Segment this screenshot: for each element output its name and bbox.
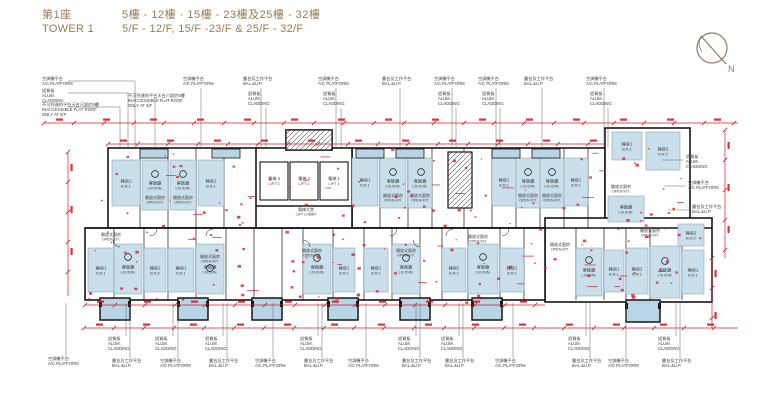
dimension-number-mark xyxy=(191,301,198,303)
annotation-mark xyxy=(410,195,412,197)
annotation-mark xyxy=(582,244,583,245)
annotation-mark xyxy=(162,225,165,227)
annotation-mark xyxy=(648,148,650,149)
annotation-mark xyxy=(477,295,480,298)
annotation-mark xyxy=(299,296,302,298)
callout-label: CLADDING xyxy=(323,101,345,106)
annotation-mark xyxy=(618,228,620,230)
dimension-number-mark xyxy=(97,301,104,303)
room-label: LIV./DIN. xyxy=(398,271,413,275)
room-label: LIV./DIN. xyxy=(657,274,672,278)
callout-label: A/C PLATFORM xyxy=(586,81,617,86)
room-label: 睡房2 xyxy=(449,265,460,272)
room-label: 睡房2 xyxy=(686,230,697,237)
dimension-number-mark xyxy=(150,119,157,121)
annotation-mark xyxy=(455,239,456,240)
annotation-mark xyxy=(407,190,410,192)
room-label: 睡房1 xyxy=(360,177,371,184)
lift-label: LIFT 1 xyxy=(329,182,340,186)
dimension-number-mark xyxy=(261,140,268,142)
room-label: 開放式廚房 xyxy=(611,183,631,189)
annotation-mark xyxy=(342,239,344,240)
dimension-number-mark xyxy=(526,119,533,121)
annotation-mark xyxy=(120,287,123,289)
callout-label: BAL.&U.P. xyxy=(382,81,401,86)
room-label: 睡房1 xyxy=(571,177,582,184)
annotation-mark xyxy=(289,187,291,189)
annotation-mark xyxy=(664,228,665,229)
room-label: 睡房1 xyxy=(206,178,217,185)
annotation-mark xyxy=(580,158,582,160)
annotation-mark xyxy=(176,176,179,178)
room-label: 睡房1 xyxy=(622,141,633,148)
room-label: 開放式廚房 xyxy=(468,233,488,239)
annotation-mark xyxy=(298,161,300,163)
room-label: 客飯廳 xyxy=(546,178,559,185)
annotation-mark xyxy=(671,282,673,283)
room-label: LIV./DIN. xyxy=(120,271,135,275)
lift-shaft xyxy=(320,162,348,200)
room-label: 睡房1 xyxy=(339,265,350,272)
room-label: OPEN KIT. xyxy=(551,248,569,252)
lift-label: 電梯 3 xyxy=(268,175,281,182)
balcony-strip xyxy=(532,149,560,158)
annotation-mark xyxy=(479,283,481,285)
dimension-number-mark xyxy=(285,301,292,303)
annotation-mark xyxy=(134,288,137,290)
dimension-number-mark xyxy=(120,140,127,142)
lift-label: LIFT 2 xyxy=(299,182,310,186)
dimension-number-mark xyxy=(425,324,432,326)
room-label: 客飯廳 xyxy=(311,264,324,271)
balcony-strip xyxy=(140,149,168,158)
balcony-column xyxy=(327,301,330,307)
dimension-number-mark xyxy=(566,324,573,326)
dimension-number-mark xyxy=(473,301,480,303)
annotation-mark xyxy=(404,207,406,209)
annotation-mark xyxy=(233,166,236,168)
annotation-mark xyxy=(88,298,90,300)
annotation-mark xyxy=(577,204,580,206)
balcony-strip xyxy=(356,149,384,158)
room-label: 睡房1 xyxy=(507,265,518,272)
dimension-number-mark xyxy=(613,324,620,326)
room-label: 睡房1 xyxy=(499,177,510,184)
callout-label: BAL.&U.P. xyxy=(524,81,543,86)
dimension-number-mark xyxy=(449,140,456,142)
dimension-number-mark xyxy=(520,301,527,303)
annotation-mark xyxy=(107,231,109,232)
room-label: OPEN KIT. xyxy=(102,238,120,242)
balcony-column xyxy=(280,301,283,307)
annotation-mark xyxy=(357,267,360,270)
dimension-number-mark xyxy=(332,301,339,303)
callout-label: CLADDING xyxy=(568,346,590,351)
room-label: B.R.1 xyxy=(622,148,632,152)
annotation-mark xyxy=(124,252,127,254)
annotation-mark xyxy=(89,292,92,295)
annotation-mark xyxy=(241,284,244,287)
dimension-number-mark xyxy=(197,119,204,121)
annotation-mark xyxy=(509,223,510,224)
balcony-strip xyxy=(396,149,424,158)
callout-label: BAL.&U.P. xyxy=(572,363,591,368)
callout-label: CLADDING xyxy=(438,101,460,106)
callout-label: A/C PLATFORM xyxy=(48,361,79,366)
annotation-mark xyxy=(534,262,536,263)
callout-label: BAL.&U.P. xyxy=(662,363,681,368)
annotation-mark xyxy=(342,215,345,217)
annotation-mark xyxy=(193,238,195,240)
annotation-mark xyxy=(650,213,653,215)
annotation-mark xyxy=(317,256,320,259)
callout-label: CLADDING xyxy=(108,346,130,351)
annotation-mark xyxy=(318,296,320,297)
room-label: 客飯廳 xyxy=(477,264,490,271)
annotation-mark xyxy=(332,262,333,263)
annotation-mark xyxy=(293,270,296,272)
annotation-mark xyxy=(306,257,308,258)
lift-shaft xyxy=(260,162,288,200)
annotation-mark xyxy=(678,234,681,236)
annotation-mark xyxy=(640,212,642,214)
annotation-mark xyxy=(242,222,244,223)
annotation-mark xyxy=(146,232,148,233)
callout-label: BAL.&U.P. xyxy=(692,209,711,214)
annotation-mark xyxy=(287,148,288,149)
room-label: 睡房2 xyxy=(632,266,643,273)
dimension-number-mark xyxy=(284,324,291,326)
annotation-mark xyxy=(470,210,472,212)
dimension-number-mark xyxy=(378,324,385,326)
annotation-mark xyxy=(398,217,400,219)
callout-label: A/C PLATFORM xyxy=(478,81,509,86)
room-label: 睡房1 xyxy=(121,178,132,185)
room-label: 開放式廚房 xyxy=(640,227,660,233)
callout-label: BAL.&U.P. xyxy=(304,363,323,368)
annotation-mark xyxy=(532,202,534,204)
room-label: 開放式廚房 xyxy=(383,192,403,198)
room-label: LIV./DIN. xyxy=(309,271,324,275)
dimension-number-mark xyxy=(308,140,315,142)
annotation-mark xyxy=(94,250,95,251)
annotation-mark xyxy=(590,249,592,251)
callout-label: BAL.&U.P. xyxy=(243,81,262,86)
room-label: 客飯廳 xyxy=(620,204,633,211)
dimension-number-mark xyxy=(728,184,730,191)
callout-label: A/C PLATFORM xyxy=(42,81,73,86)
annotation-mark xyxy=(241,294,244,296)
annotation-mark xyxy=(666,261,669,263)
annotation-mark xyxy=(619,278,622,280)
room-label: OPEN KIT. xyxy=(146,201,164,205)
annotation-mark xyxy=(358,181,360,182)
annotation-mark xyxy=(436,281,438,283)
annotation-mark xyxy=(672,208,675,210)
annotation-mark xyxy=(622,157,625,159)
room-label: LIV./DIN. xyxy=(412,185,427,189)
room-label: LIV./DIN. xyxy=(618,211,633,215)
room-label: B.R.2 xyxy=(658,153,668,157)
annotation-mark xyxy=(450,249,453,252)
room-label: 開放式廚房 xyxy=(101,231,121,237)
annotation-mark xyxy=(394,272,397,274)
balcony-column xyxy=(128,301,131,307)
callout-label: CLADDING xyxy=(300,346,322,351)
annotation-mark xyxy=(269,179,271,181)
room-label: B.R.1 xyxy=(96,272,106,276)
annotation-mark xyxy=(126,213,128,215)
dimension-number-mark xyxy=(355,140,362,142)
annotation-mark xyxy=(335,297,338,299)
balcony xyxy=(400,298,430,320)
annotation-mark xyxy=(589,176,592,178)
balcony xyxy=(626,300,660,322)
room-label: LIV./DIN. xyxy=(385,185,400,189)
room-label: 客飯廳 xyxy=(387,178,400,185)
callout-label: A/C PLATFORM xyxy=(183,81,214,86)
annotation-mark xyxy=(626,219,629,222)
room-label: 開放式廚房 xyxy=(173,194,193,200)
room-label: 電梯大堂 xyxy=(298,206,314,212)
annotation-mark xyxy=(465,167,468,169)
room-label: LIV./DIN. xyxy=(520,185,535,189)
annotation-mark xyxy=(460,300,462,301)
room-label: 客飯廳 xyxy=(400,264,413,271)
room-label: 開放式廚房 xyxy=(542,192,562,198)
callout-label: ONLY AT 5/F xyxy=(128,103,153,108)
room-label: OPEN KIT. xyxy=(411,199,429,203)
callout-label: A/C PLATFORM xyxy=(348,363,379,368)
annotation-mark xyxy=(423,260,425,262)
callout-label: CLADDING xyxy=(441,346,463,351)
room-label: 開放式廚房 xyxy=(410,192,430,198)
dimension-number-mark xyxy=(385,119,392,121)
dimension-number-mark xyxy=(143,324,150,326)
annotation-mark xyxy=(173,166,176,168)
room-label: 客飯廳 xyxy=(122,264,135,271)
dimension-number-mark xyxy=(144,301,151,303)
annotation-mark xyxy=(544,267,547,269)
balcony-column xyxy=(658,303,661,309)
dimension-number-mark xyxy=(728,142,730,149)
annotation-mark xyxy=(291,286,294,288)
annotation-mark xyxy=(497,278,500,280)
room-label: 客飯廳 xyxy=(177,180,190,187)
room-label: 睡房1 xyxy=(176,265,187,272)
room-label: 睡房1 xyxy=(609,266,620,273)
room-label: B.R.1 xyxy=(609,273,619,277)
annotation-mark xyxy=(634,163,636,164)
annotation-mark xyxy=(239,224,241,226)
annotation-mark xyxy=(423,205,426,207)
callout-label: A/C PLATFORM xyxy=(434,81,465,86)
dimension-number-mark xyxy=(244,119,251,121)
lift-shaft xyxy=(290,162,318,200)
balcony xyxy=(252,298,282,320)
room-label: 開放式廚房 xyxy=(550,241,570,247)
annotation-mark xyxy=(405,244,407,246)
callout-label: A/C PLATFORM xyxy=(495,363,526,368)
annotation-mark xyxy=(675,271,678,273)
room-label: B.R.2 xyxy=(449,272,459,276)
dimension-number-mark xyxy=(432,119,439,121)
dimension-number-mark xyxy=(56,119,63,121)
annotation-mark xyxy=(481,159,482,160)
annotation-mark xyxy=(136,261,138,262)
annotation-mark xyxy=(115,173,117,175)
annotation-mark xyxy=(645,224,648,226)
annotation-mark xyxy=(432,209,435,212)
room-label: 開放式廚房 xyxy=(302,247,322,253)
annotation-mark xyxy=(101,200,103,201)
balcony-column xyxy=(500,301,503,307)
annotation-mark xyxy=(384,248,385,249)
room-label: 開放式廚房 xyxy=(200,253,220,259)
room-label: OPEN KIT. xyxy=(174,201,192,205)
dimension-number-mark xyxy=(331,324,338,326)
dimension-number-mark xyxy=(426,301,433,303)
balcony-column xyxy=(177,301,180,307)
annotation-mark xyxy=(509,266,512,269)
annotation-mark xyxy=(225,209,227,211)
room-label: B.R.2 xyxy=(686,237,696,241)
dimension-number-mark xyxy=(707,324,714,326)
lift-label: 電梯 1 xyxy=(328,175,341,182)
callout-label: CLADDING xyxy=(155,346,177,351)
balcony-column xyxy=(625,303,628,309)
dimension-number-mark xyxy=(667,119,674,121)
callout-label: BAL.&U.P. xyxy=(402,363,421,368)
room-label: 客飯廳 xyxy=(414,178,427,185)
callout-label: BAL.&U.P. xyxy=(445,363,464,368)
annotation-mark xyxy=(668,212,670,214)
annotation-mark xyxy=(203,211,206,213)
annotation-mark xyxy=(238,265,241,268)
dimension-number-mark xyxy=(71,164,73,171)
annotation-mark xyxy=(403,183,405,184)
dimension-number-mark xyxy=(71,206,73,213)
annotation-mark xyxy=(156,298,158,299)
annotation-mark xyxy=(587,275,590,277)
room-label: B.R.2 xyxy=(150,272,160,276)
annotation-mark xyxy=(433,160,435,162)
room-label: LIV./DIN. xyxy=(175,187,190,191)
dimension-number-mark xyxy=(238,301,245,303)
callout-label: CLADDING xyxy=(398,346,420,351)
annotation-mark xyxy=(485,195,487,197)
annotation-mark xyxy=(363,244,366,246)
annotation-mark xyxy=(291,260,294,262)
room-label: 開放式廚房 xyxy=(396,247,416,253)
annotation-mark xyxy=(645,236,648,238)
annotation-mark xyxy=(394,196,397,198)
room-label: OPEN KIT. xyxy=(641,234,659,238)
annotation-mark xyxy=(111,242,112,243)
balcony-strip xyxy=(212,149,240,158)
callout-label: CLADDING xyxy=(248,101,270,106)
annotation-mark xyxy=(458,209,461,212)
annotation-mark xyxy=(531,243,533,244)
dimension-number-mark xyxy=(715,312,717,319)
room-label: B.R.1 xyxy=(688,274,698,278)
dimension-number-mark xyxy=(543,140,550,142)
balcony-column xyxy=(399,301,402,307)
dimension-number-mark xyxy=(496,140,503,142)
balcony-column xyxy=(251,301,254,307)
annotation-mark xyxy=(680,178,681,179)
annotation-mark xyxy=(352,253,355,256)
dimension-number-mark xyxy=(519,324,526,326)
room-label: 開放式廚房 xyxy=(518,192,538,198)
room-label: OPEN KIT. xyxy=(201,260,219,264)
annotation-mark xyxy=(453,160,456,163)
room-label: B.R.1 xyxy=(507,272,517,276)
room-label: B.R.1 xyxy=(360,184,370,188)
dimension-number-mark xyxy=(590,140,597,142)
annotation-mark xyxy=(563,207,566,209)
lift-label: LIFT 3 xyxy=(269,182,280,186)
dimension-number-mark xyxy=(103,119,110,121)
annotation-mark xyxy=(554,258,557,260)
annotation-mark xyxy=(126,156,129,158)
annotation-mark xyxy=(351,205,354,207)
callout-label: A/C PLATFORM xyxy=(318,81,349,86)
annotation-mark xyxy=(477,242,479,244)
annotation-mark xyxy=(135,251,138,254)
annotation-mark xyxy=(583,240,586,243)
callout-label: A/C PLATFORM xyxy=(255,363,286,368)
annotation-mark xyxy=(332,234,335,236)
room-label: OPEN KIT. xyxy=(543,199,561,203)
callout-label: BAL.&U.P. xyxy=(209,363,228,368)
annotation-mark xyxy=(219,202,221,203)
dimension-number-mark xyxy=(214,140,221,142)
room-label: LIV./DIN. xyxy=(544,185,559,189)
dimension-number-mark xyxy=(291,119,298,121)
lift-label: 電梯 2 xyxy=(298,175,311,182)
callout-label: A/C PLATFORM xyxy=(688,185,719,190)
annotation-mark xyxy=(656,282,659,284)
annotation-mark xyxy=(391,148,394,151)
annotation-mark xyxy=(625,251,628,253)
room-label: 睡房2 xyxy=(150,265,161,272)
annotation-mark xyxy=(621,289,624,291)
balcony xyxy=(100,298,130,320)
room-label: OPEN KIT. xyxy=(397,254,415,258)
annotation-mark xyxy=(240,203,242,205)
dimension-number-mark xyxy=(728,226,730,233)
annotation-mark xyxy=(525,190,526,191)
annotation-mark xyxy=(631,294,634,297)
room-label: 客飯廳 xyxy=(659,267,672,274)
dimension-number-mark xyxy=(237,324,244,326)
floor-plan: 睡房1B.R.1客飯廳LIV./DIN.客飯廳LIV./DIN.睡房1B.R.1… xyxy=(0,0,768,410)
room-label: B.R.1 xyxy=(499,184,509,188)
room-label: 客飯廳 xyxy=(583,267,596,274)
annotation-mark xyxy=(628,240,630,242)
callout-label: A/C PLATFORM xyxy=(608,363,639,368)
callout-label: CLADDING xyxy=(205,346,227,351)
balcony-strip xyxy=(492,149,520,158)
dimension-number-mark xyxy=(472,324,479,326)
callout-label: CLADDING xyxy=(590,101,612,106)
dimension-number-mark xyxy=(660,324,667,326)
annotation-mark xyxy=(249,197,251,199)
dimension-number-mark xyxy=(715,270,717,277)
annotation-mark xyxy=(305,204,308,207)
annotation-mark xyxy=(337,168,339,170)
